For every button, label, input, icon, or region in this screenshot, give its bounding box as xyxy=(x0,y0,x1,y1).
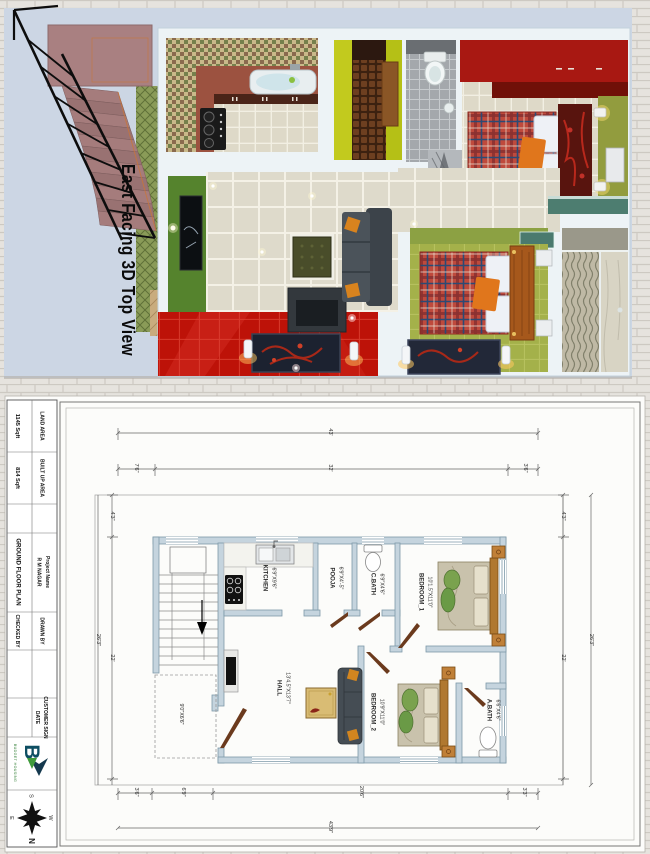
compass-north: N xyxy=(27,838,36,844)
dim-left-a: 4'3" xyxy=(109,511,115,520)
cbath-2d xyxy=(364,545,382,572)
toilet-2d xyxy=(366,553,381,572)
land-area-value: 1145 Sqft xyxy=(14,414,20,439)
coffee-table-3d xyxy=(290,234,334,280)
dim-bottom-b: 6'9" xyxy=(180,787,186,796)
dim-top-b: 32' xyxy=(327,464,333,471)
drawing-sheet xyxy=(5,396,645,852)
compass-south: S xyxy=(28,794,34,798)
pooja-3d xyxy=(334,40,402,160)
svg-text:BEDROOM_2: BEDROOM_2 xyxy=(370,693,376,732)
washbasin-3d xyxy=(444,103,454,113)
svg-text:10'1.5"X11'0": 10'1.5"X11'0" xyxy=(427,576,433,607)
dim-right-b: 22' xyxy=(560,654,566,661)
house-3d xyxy=(158,28,630,376)
logo-letter: B xyxy=(20,744,43,759)
customer-sign-label: CUSTOMER SIGN xyxy=(42,696,48,739)
svg-text:A.BATH: A.BATH xyxy=(486,699,492,721)
abath-2d xyxy=(479,727,497,757)
compass-east: E xyxy=(8,816,14,820)
stove-3d xyxy=(200,108,226,150)
svg-text:POOJA: POOJA xyxy=(329,567,335,589)
pooja-shelf xyxy=(382,62,398,126)
logo-name: BUDGET HOUSING xyxy=(13,744,17,782)
sofa-2d xyxy=(338,668,362,744)
built-up-label: BUILT UP AREA xyxy=(39,459,45,497)
dim-bottom-total: 43'9" xyxy=(327,821,333,833)
svg-text:BEDROOM_1: BEDROOM_1 xyxy=(418,573,424,612)
dim-bottom-c: 20'6" xyxy=(358,786,364,798)
dim-top-c: 3'6" xyxy=(522,463,528,472)
dim-left-b: 22' xyxy=(109,654,115,661)
dim-top-a: 7'6" xyxy=(133,463,139,472)
tv-2d xyxy=(226,657,236,685)
dim-bottom-d: 3'3" xyxy=(521,787,527,796)
hall-3d xyxy=(158,172,398,376)
svg-text:13'4.5"X13'7": 13'4.5"X13'7" xyxy=(285,672,291,704)
room-label-sitout: 9'0"X6'6" xyxy=(178,703,184,724)
tv-3d xyxy=(180,196,202,270)
dim-top-total: 43' xyxy=(327,428,333,435)
kitchen-3d xyxy=(166,38,318,152)
built-up-value: 814 Sqft xyxy=(14,467,20,489)
bedroom2-rug-3d xyxy=(408,340,500,374)
sheet-canvas: East Facing 3D Top View xyxy=(0,0,650,854)
headboard-art-3d xyxy=(558,104,592,202)
bed1-headboard xyxy=(490,558,498,634)
bedroom2-3d xyxy=(398,228,554,374)
cbath-3d xyxy=(406,40,456,162)
tv-cabinet-3d xyxy=(288,288,346,332)
dim-right-a: 4'3" xyxy=(560,511,566,520)
dim-left-total: 26'3" xyxy=(95,634,101,646)
drawn-by-label: DRAWN BY xyxy=(39,617,45,645)
plan-2d: LAND AREA 1145 Sqft BUILT UP AREA 814 Sq… xyxy=(5,396,645,852)
svg-text:HALL: HALL xyxy=(276,680,282,696)
drawing-title: GROUND FLOOR PLAN xyxy=(15,538,21,605)
toilet2-2d xyxy=(480,727,496,749)
bed2-3d xyxy=(420,246,552,340)
floor-plan-sheet: East Facing 3D Top View xyxy=(0,0,650,854)
project-label: Project Name xyxy=(44,556,50,588)
date-label: DATE xyxy=(34,711,40,725)
dim-right-total: 26'3" xyxy=(588,634,594,646)
stove-2d xyxy=(225,575,243,604)
land-area-label: LAND AREA xyxy=(39,411,45,441)
bed2-headboard xyxy=(440,680,448,750)
compass-west: W xyxy=(47,815,53,821)
svg-text:KITCHEN: KITCHEN xyxy=(262,565,268,592)
svg-text:6'9"X4'6": 6'9"X4'6" xyxy=(379,573,385,594)
sofa-3d xyxy=(342,208,392,306)
rug-2d xyxy=(306,688,336,718)
svg-text:C.BATH: C.BATH xyxy=(370,573,376,595)
project-name: R M NAGAR xyxy=(36,558,42,587)
abath-3d xyxy=(562,228,628,372)
svg-text:6'9"X4'-5": 6'9"X4'-5" xyxy=(338,567,344,590)
svg-text:6'9"X9'6": 6'9"X9'6" xyxy=(271,567,277,588)
caption-3d: East Facing 3D Top View xyxy=(118,164,138,356)
dim-bottom-a: 3'6" xyxy=(133,787,139,796)
view-3d: East Facing 3D Top View xyxy=(4,6,632,379)
title-block: LAND AREA 1145 Sqft BUILT UP AREA 814 Sq… xyxy=(7,400,57,847)
svg-text:6'6"X4'6": 6'6"X4'6" xyxy=(495,699,501,720)
checked-by-label: CHECKED BY xyxy=(14,614,20,648)
nightstand-3d xyxy=(606,148,624,182)
svg-text:10'9"X11'0": 10'9"X11'0" xyxy=(379,699,385,726)
